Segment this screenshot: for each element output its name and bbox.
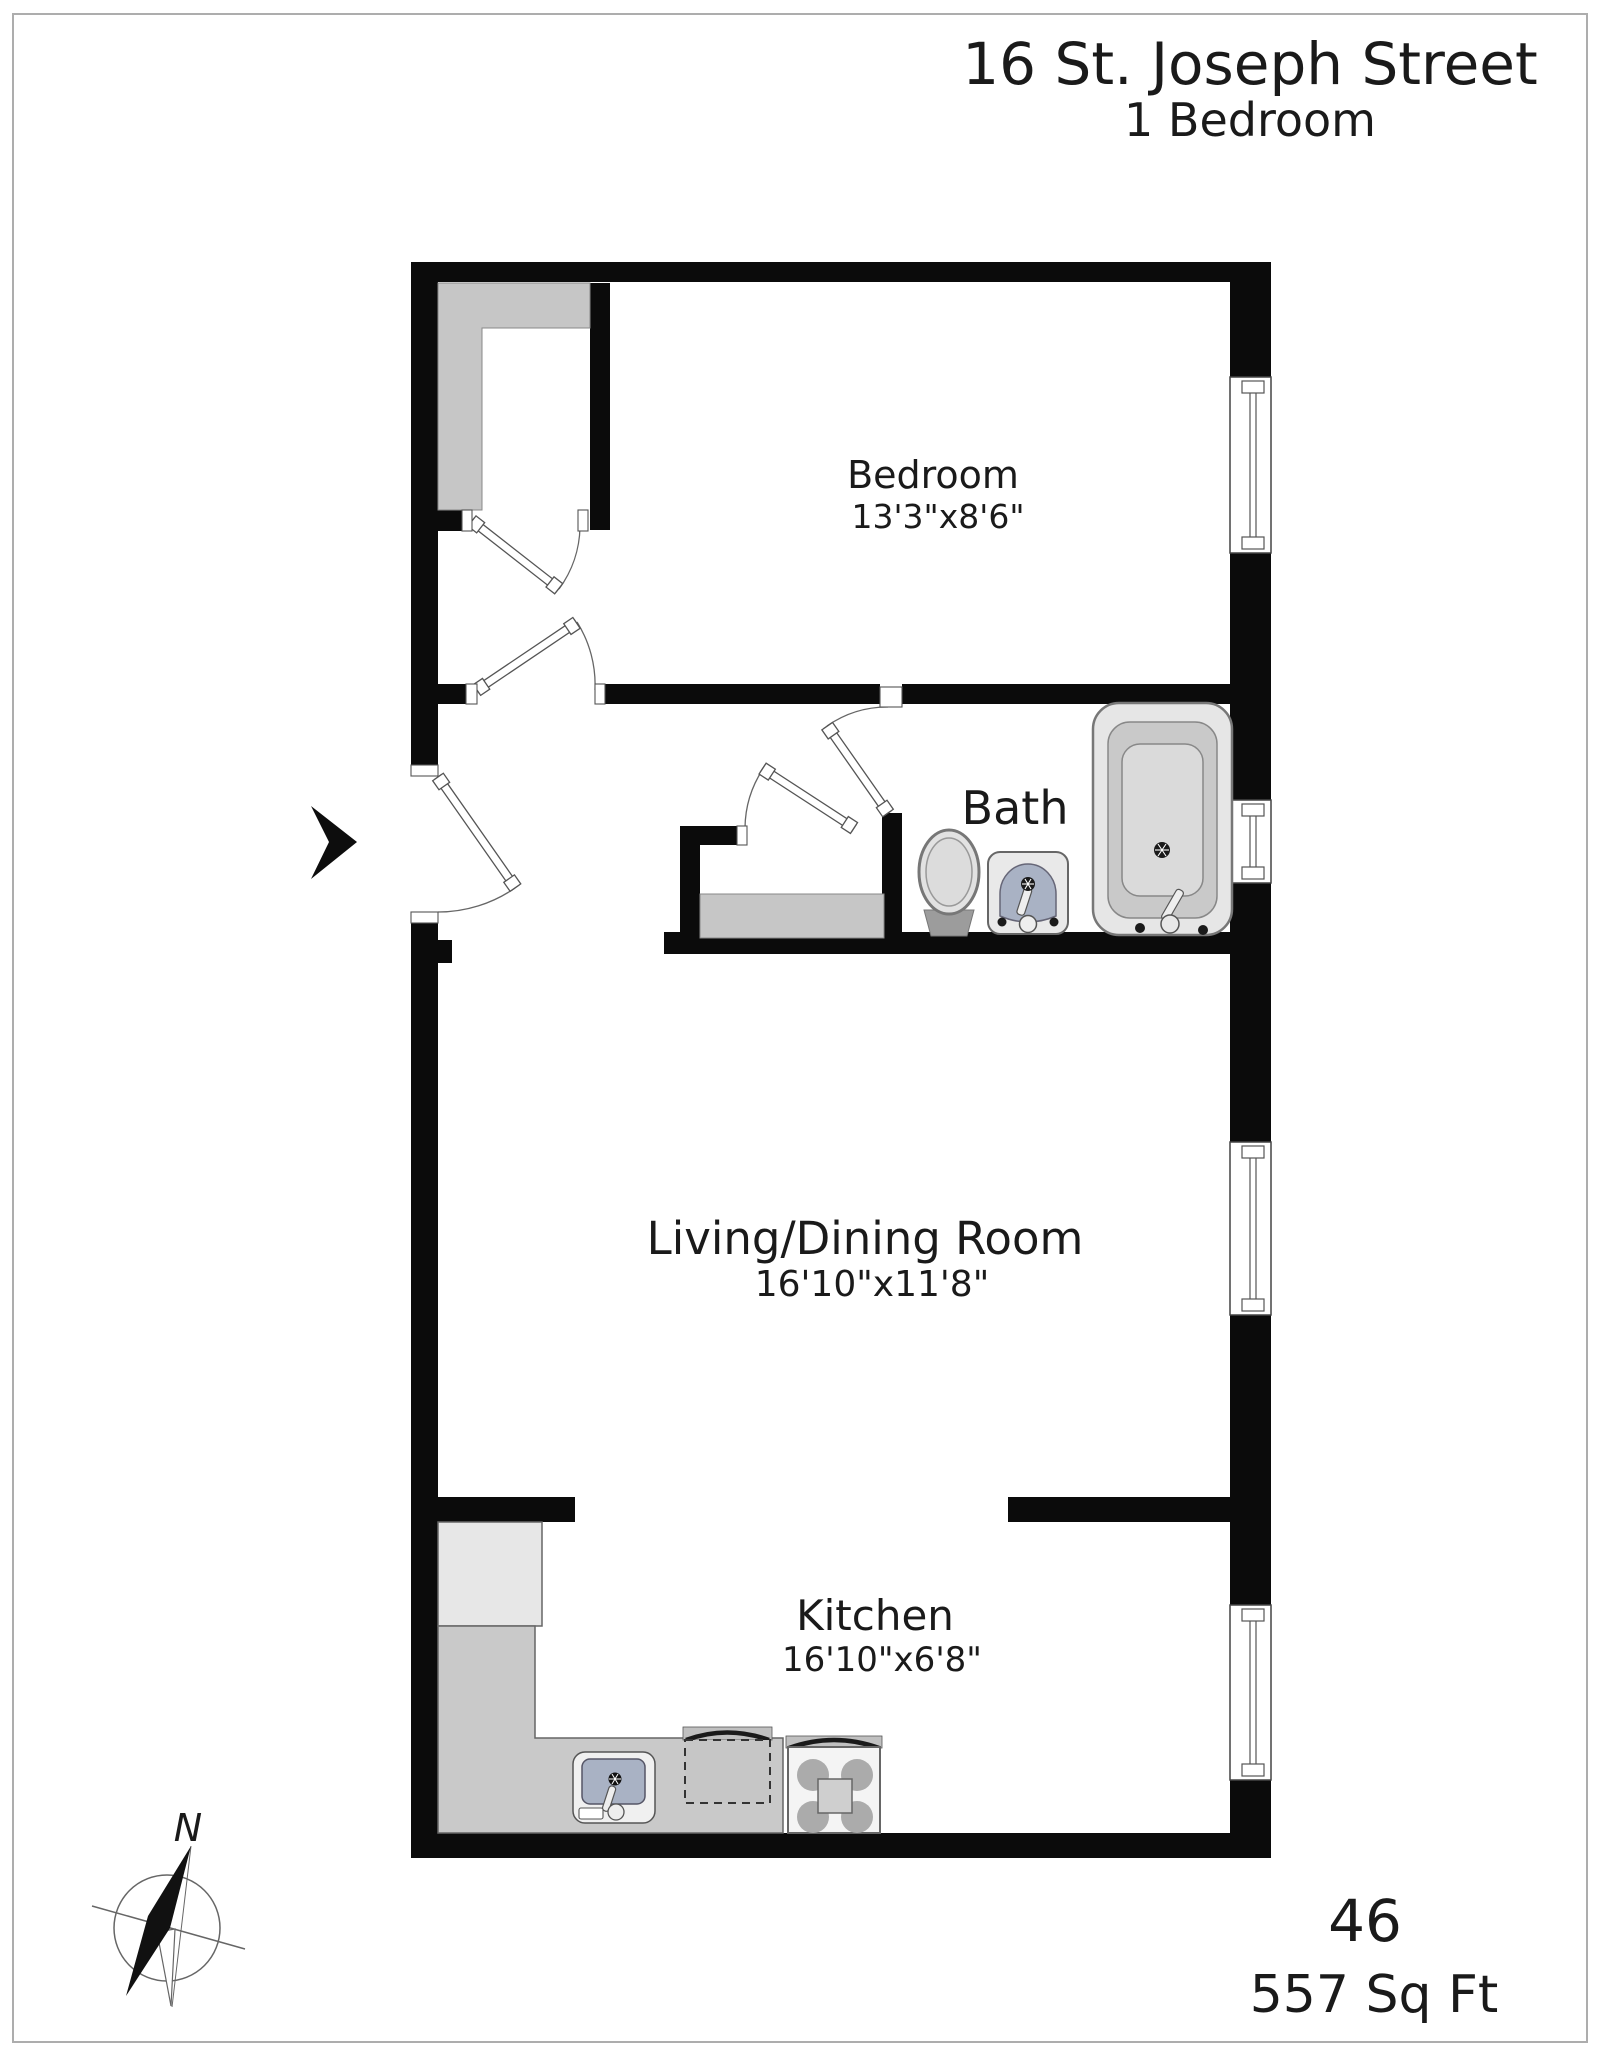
door-swing-icon bbox=[466, 618, 605, 704]
door-swing-icon bbox=[737, 763, 858, 845]
kitchen-label: Kitchen bbox=[796, 1591, 954, 1640]
door-swing-icon bbox=[822, 687, 902, 817]
wall-bath-north bbox=[902, 684, 1230, 704]
living-room-label: Living/Dining Room bbox=[647, 1212, 1084, 1265]
hall-closet-shelf bbox=[700, 894, 884, 938]
wall-west-upper bbox=[411, 262, 438, 776]
compass-north-needle bbox=[126, 1846, 191, 1996]
compass-rose-icon: N bbox=[92, 1806, 245, 2007]
refrigerator-icon bbox=[438, 1522, 542, 1626]
floorplan-page: 16 St. Joseph Street 1 Bedroom bbox=[0, 0, 1600, 2071]
wall-north bbox=[411, 262, 1271, 282]
wall-east-seg2 bbox=[1230, 553, 1271, 800]
compass-north-label: N bbox=[174, 1806, 202, 1850]
wall-east-seg5 bbox=[1230, 1780, 1271, 1858]
wall-south bbox=[411, 1833, 1271, 1858]
kitchen-dims: 16'10"x6'8" bbox=[782, 1640, 982, 1680]
page-title: 16 St. Joseph Street bbox=[962, 30, 1537, 98]
window-icon bbox=[1230, 800, 1271, 883]
wall-hall-stub bbox=[438, 684, 466, 704]
wall-bedroom-south-west bbox=[597, 684, 880, 704]
page-subtitle: 1 Bedroom bbox=[1124, 93, 1376, 147]
window-icon bbox=[1230, 1142, 1271, 1315]
wall-east-seg3 bbox=[1230, 883, 1271, 1142]
window-icon bbox=[1230, 1605, 1271, 1780]
dishwasher-icon bbox=[683, 1727, 772, 1803]
wall-west-pilaster bbox=[438, 940, 452, 963]
wall-bedroom-west bbox=[590, 283, 610, 530]
bath-label: Bath bbox=[962, 781, 1069, 835]
wall-east-seg4 bbox=[1230, 1315, 1271, 1605]
bedroom-closet-shelf bbox=[438, 283, 590, 510]
bathtub-icon bbox=[1093, 703, 1232, 935]
door-swing-icon bbox=[462, 510, 588, 594]
wall-west-lower bbox=[411, 913, 438, 1858]
living-room-dims: 16'10"x11'8" bbox=[755, 1264, 990, 1305]
wall-kitchen-divider-right bbox=[1008, 1497, 1230, 1522]
window-icon bbox=[1230, 377, 1271, 553]
bedroom-label: Bedroom bbox=[847, 453, 1019, 497]
square-footage: 557 Sq Ft bbox=[1250, 1965, 1499, 2025]
wall-midcloset-left bbox=[680, 826, 700, 938]
kitchen-sink-icon bbox=[573, 1752, 655, 1823]
stove-icon bbox=[786, 1736, 882, 1833]
entry-arrow-icon bbox=[311, 806, 357, 879]
wall-kitchen-divider-left bbox=[438, 1497, 575, 1522]
unit-number: 46 bbox=[1328, 1887, 1402, 1955]
floorplan-canvas: 16 St. Joseph Street 1 Bedroom bbox=[0, 0, 1600, 2071]
bedroom-dims: 13'3"x8'6" bbox=[851, 497, 1024, 536]
bathroom-sink-icon bbox=[988, 852, 1068, 934]
toilet-icon bbox=[919, 830, 979, 936]
entry-door bbox=[411, 765, 521, 923]
wall-east-seg1 bbox=[1230, 262, 1271, 377]
